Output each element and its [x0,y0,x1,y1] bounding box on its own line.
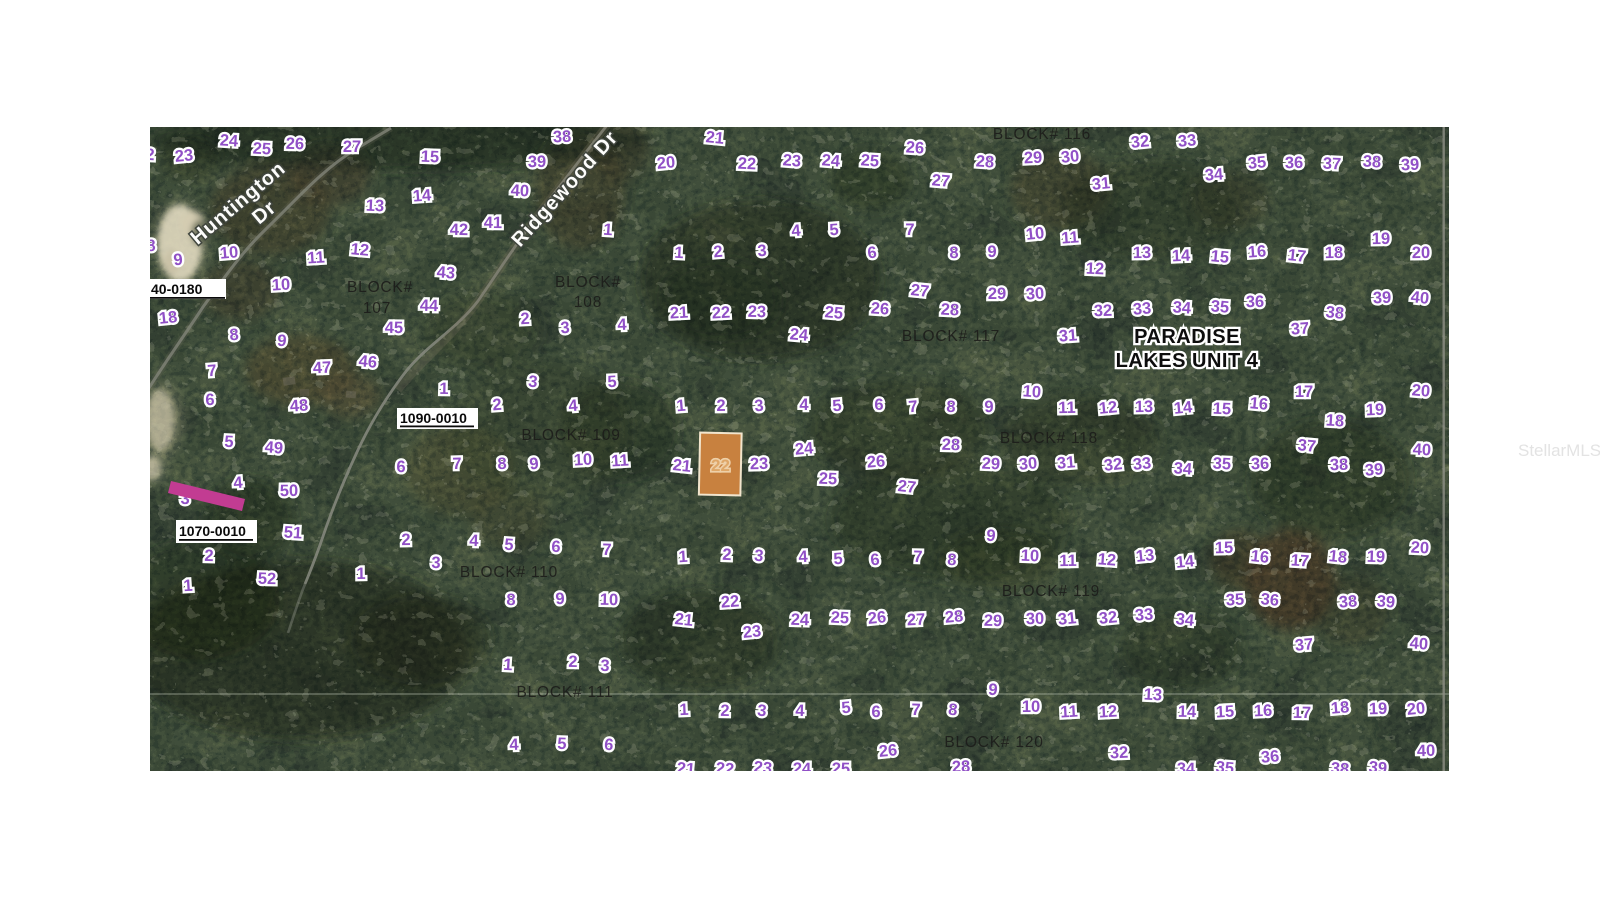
svg-text:23: 23 [174,146,194,166]
svg-text:13: 13 [1143,686,1162,705]
svg-text:7: 7 [905,221,914,239]
svg-text:15: 15 [1212,400,1231,419]
svg-text:13: 13 [1135,398,1154,416]
svg-text:37: 37 [1290,319,1310,338]
svg-text:31: 31 [1058,326,1078,345]
svg-text:BLOCK# 119: BLOCK# 119 [1002,583,1100,600]
svg-text:11: 11 [1059,552,1077,570]
svg-text:BLOCK#: BLOCK# [555,274,621,291]
svg-text:2: 2 [492,396,502,415]
svg-text:26: 26 [878,741,898,761]
svg-text:14: 14 [1171,247,1191,266]
svg-text:23: 23 [750,455,769,473]
svg-text:11: 11 [307,248,326,267]
svg-text:15: 15 [1215,539,1234,557]
svg-text:38: 38 [552,128,571,147]
svg-text:4: 4 [509,736,520,754]
svg-text:15: 15 [1210,247,1230,267]
svg-text:20: 20 [1411,381,1431,400]
svg-text:19: 19 [1365,401,1384,420]
svg-text:5: 5 [832,397,843,416]
svg-text:4: 4 [799,396,809,414]
svg-text:7: 7 [452,455,462,473]
svg-text:6: 6 [205,391,215,409]
svg-text:30: 30 [1060,147,1080,167]
svg-text:10: 10 [1022,382,1042,401]
svg-text:30: 30 [1018,454,1038,474]
svg-text:21: 21 [674,610,694,630]
svg-text:35: 35 [1247,153,1267,173]
svg-text:34: 34 [1172,298,1192,317]
svg-text:26: 26 [867,608,887,628]
svg-text:12: 12 [1098,398,1118,418]
svg-text:11: 11 [1061,228,1080,247]
svg-text:17: 17 [1290,551,1309,570]
svg-text:24: 24 [791,611,811,630]
svg-text:1: 1 [679,701,689,719]
svg-text:35: 35 [1212,455,1231,474]
svg-text:8: 8 [947,551,957,570]
svg-text:29: 29 [984,612,1003,630]
svg-text:31: 31 [1056,453,1076,472]
svg-text:1: 1 [503,656,513,675]
svg-text:5: 5 [224,433,234,451]
svg-text:8: 8 [506,591,515,609]
svg-text:52: 52 [258,570,277,588]
svg-text:40: 40 [510,182,529,201]
svg-text:11: 11 [611,451,630,470]
svg-text:21: 21 [705,128,725,148]
svg-text:10: 10 [1022,698,1040,716]
svg-text:BLOCK# 111: BLOCK# 111 [516,684,613,701]
svg-text:4: 4 [795,702,805,720]
svg-text:25: 25 [860,151,880,170]
svg-text:3: 3 [600,657,610,675]
svg-text:10: 10 [1025,224,1045,244]
svg-text:25: 25 [818,470,837,489]
svg-text:2: 2 [720,702,730,720]
svg-text:32: 32 [1109,744,1128,763]
svg-text:22: 22 [737,155,756,174]
svg-text:3: 3 [753,547,764,566]
svg-text:3: 3 [560,319,570,338]
svg-text:9: 9 [985,527,996,546]
svg-text:6: 6 [871,703,880,721]
svg-text:5: 5 [607,373,617,391]
svg-text:107: 107 [363,300,391,317]
svg-text:37: 37 [1297,436,1317,456]
svg-text:3: 3 [754,397,765,416]
svg-text:34: 34 [1175,610,1196,630]
svg-text:33: 33 [1177,131,1197,150]
svg-text:20: 20 [656,153,676,173]
svg-text:32: 32 [1130,132,1150,152]
svg-text:39: 39 [1364,460,1384,479]
svg-text:20: 20 [1410,539,1429,558]
svg-text:36: 36 [1246,293,1265,311]
svg-text:49: 49 [264,438,284,457]
svg-text:23: 23 [742,622,762,642]
svg-text:2: 2 [713,243,724,262]
svg-text:20: 20 [1406,699,1426,719]
svg-text:6: 6 [870,551,881,570]
svg-text:50: 50 [280,482,299,500]
svg-text:28: 28 [975,152,994,171]
svg-text:7: 7 [602,541,612,559]
svg-text:4: 4 [469,532,480,550]
svg-text:10: 10 [600,591,619,609]
svg-text:41: 41 [484,214,503,232]
svg-text:23: 23 [782,151,802,170]
svg-text:6: 6 [867,244,878,263]
svg-text:20: 20 [1412,244,1431,262]
svg-text:15: 15 [420,148,439,167]
svg-text:4: 4 [798,548,809,566]
svg-text:19: 19 [1372,230,1391,248]
svg-text:2: 2 [568,653,578,671]
svg-text:9: 9 [987,681,998,700]
svg-text:5: 5 [829,221,839,240]
svg-text:45: 45 [385,319,404,337]
svg-text:17: 17 [1293,704,1312,722]
svg-text:24: 24 [794,439,815,459]
svg-text:36: 36 [1260,590,1280,610]
svg-text:13: 13 [365,197,384,216]
svg-text:9: 9 [277,332,288,351]
svg-text:35: 35 [1210,297,1230,316]
svg-text:2: 2 [401,531,411,549]
svg-text:PARADISE: PARADISE [1134,326,1240,348]
svg-text:13: 13 [1133,244,1152,262]
svg-text:1: 1 [183,577,193,596]
svg-text:32: 32 [1098,608,1118,628]
svg-text:5: 5 [841,699,852,718]
svg-text:6: 6 [551,538,561,556]
svg-text:27: 27 [343,138,361,156]
svg-text:24: 24 [219,131,239,150]
svg-text:7: 7 [207,362,218,381]
svg-text:27: 27 [906,611,925,630]
svg-text:9: 9 [984,398,994,416]
svg-text:9: 9 [173,251,184,270]
svg-text:40-0180: 40-0180 [151,281,203,297]
svg-text:22: 22 [711,304,730,323]
svg-text:26: 26 [870,299,889,318]
svg-text:12: 12 [1098,703,1117,722]
svg-text:26: 26 [866,452,886,471]
svg-text:21: 21 [669,304,688,323]
svg-text:36: 36 [1285,154,1304,172]
svg-text:3: 3 [757,242,767,261]
svg-text:8: 8 [949,244,959,262]
svg-text:38: 38 [1338,592,1358,611]
svg-text:34: 34 [1204,165,1224,184]
svg-text:14: 14 [412,186,432,205]
svg-text:42: 42 [450,221,469,239]
svg-text:BLOCK# 116: BLOCK# 116 [993,126,1091,143]
svg-text:14: 14 [1178,703,1198,721]
svg-text:7: 7 [908,398,919,417]
svg-text:33: 33 [1132,454,1152,474]
svg-text:11: 11 [1058,399,1076,417]
svg-text:5: 5 [504,536,514,555]
svg-text:2: 2 [520,310,530,328]
svg-text:51: 51 [283,523,302,542]
svg-text:3: 3 [431,554,441,572]
svg-text:7: 7 [911,701,921,719]
svg-text:8: 8 [229,326,239,345]
svg-text:27: 27 [897,477,917,497]
svg-text:LAKES UNIT 4: LAKES UNIT 4 [1116,350,1259,372]
svg-text:47: 47 [312,359,331,378]
svg-text:14: 14 [1173,398,1194,418]
svg-text:39: 39 [1376,592,1396,611]
svg-text:27: 27 [931,171,951,190]
svg-text:1: 1 [676,397,687,416]
svg-text:8: 8 [947,701,958,720]
svg-text:8: 8 [497,455,507,473]
svg-text:7: 7 [913,548,923,566]
svg-text:27: 27 [910,281,930,301]
svg-text:39: 39 [528,153,547,171]
svg-text:26: 26 [286,135,305,154]
svg-text:33: 33 [1134,605,1153,624]
svg-text:16: 16 [1250,547,1270,567]
svg-text:38: 38 [1325,303,1345,323]
svg-text:40: 40 [1410,288,1430,308]
svg-text:25: 25 [824,303,844,323]
svg-text:9: 9 [555,590,565,608]
svg-text:44: 44 [420,297,440,315]
svg-text:24: 24 [789,325,810,345]
svg-text:28: 28 [942,436,961,455]
svg-text:31: 31 [1057,609,1077,629]
svg-text:37: 37 [1322,155,1341,174]
svg-text:40: 40 [1409,634,1429,653]
svg-text:12: 12 [1085,260,1104,279]
svg-text:BLOCK# 109: BLOCK# 109 [521,427,620,444]
svg-text:26: 26 [905,138,924,157]
svg-text:19: 19 [1367,548,1386,567]
svg-text:18: 18 [1330,698,1350,717]
svg-text:BLOCK#: BLOCK# [347,279,413,296]
svg-text:40: 40 [1412,441,1431,460]
svg-text:29: 29 [981,455,1000,474]
svg-text:40: 40 [1417,742,1436,760]
svg-text:1090-0010: 1090-0010 [400,410,467,426]
svg-text:4: 4 [617,316,628,334]
svg-text:33: 33 [1132,299,1152,318]
svg-text:32: 32 [1103,455,1123,475]
svg-text:46: 46 [358,352,378,372]
svg-text:16: 16 [1253,702,1272,721]
svg-text:1: 1 [439,380,449,398]
svg-text:28: 28 [944,607,964,626]
svg-text:21: 21 [672,456,692,476]
svg-text:10: 10 [1020,547,1039,566]
svg-text:39: 39 [1400,156,1419,175]
svg-text:30: 30 [1026,610,1045,629]
svg-text:10: 10 [573,451,592,470]
svg-text:5: 5 [557,735,567,753]
svg-text:3: 3 [527,373,538,392]
svg-text:6: 6 [874,396,883,414]
svg-text:8: 8 [946,398,956,416]
svg-text:48: 48 [289,396,309,415]
svg-text:11: 11 [1060,703,1078,722]
svg-text:BLOCK# 120: BLOCK# 120 [944,734,1043,751]
svg-text:15: 15 [1215,703,1234,722]
svg-text:38: 38 [1362,152,1381,171]
svg-text:36: 36 [1251,455,1270,473]
svg-text:1: 1 [603,221,613,240]
svg-text:1: 1 [678,548,688,566]
svg-text:9: 9 [987,243,996,261]
svg-text:18: 18 [1325,244,1344,262]
svg-text:19: 19 [1369,700,1388,718]
svg-text:23: 23 [748,303,767,322]
svg-text:36: 36 [1260,747,1280,766]
svg-text:38: 38 [1330,456,1349,475]
svg-text:24: 24 [821,151,841,170]
svg-text:22: 22 [720,592,740,611]
svg-text:29: 29 [988,285,1006,303]
svg-text:1: 1 [356,565,365,583]
svg-text:12: 12 [350,240,370,260]
svg-text:25: 25 [830,609,849,628]
svg-text:1: 1 [674,244,684,262]
svg-text:StellarMLS: StellarMLS [1518,441,1600,460]
svg-text:2: 2 [204,547,214,565]
svg-text:18: 18 [1328,547,1348,567]
svg-text:22: 22 [711,456,730,475]
svg-text:25: 25 [252,140,271,159]
svg-text:39: 39 [1372,289,1391,308]
svg-text:10: 10 [219,243,239,262]
svg-text:BLOCK# 118: BLOCK# 118 [1000,430,1098,447]
svg-text:10: 10 [271,276,290,295]
svg-text:14: 14 [1175,552,1196,572]
svg-text:108: 108 [574,294,602,311]
svg-text:43: 43 [436,263,456,282]
svg-text:BLOCK# 110: BLOCK# 110 [460,564,558,581]
svg-text:5: 5 [833,550,843,569]
svg-text:35: 35 [1225,591,1244,610]
svg-text:BLOCK# 117: BLOCK# 117 [902,328,1000,345]
svg-text:18: 18 [1325,411,1344,430]
svg-text:37: 37 [1294,635,1314,654]
svg-text:13: 13 [1135,546,1155,566]
svg-text:30: 30 [1025,284,1045,303]
svg-text:1070-0010: 1070-0010 [179,523,246,539]
svg-text:16: 16 [1249,394,1269,414]
svg-text:17: 17 [1287,246,1307,266]
svg-text:34: 34 [1173,459,1193,478]
svg-text:9: 9 [529,455,540,474]
svg-text:17: 17 [1295,383,1313,401]
svg-text:29: 29 [1023,149,1042,168]
svg-text:28: 28 [940,301,959,320]
svg-text:32: 32 [1094,302,1113,321]
svg-text:6: 6 [396,458,405,476]
svg-text:3: 3 [756,702,767,721]
svg-text:2: 2 [716,397,725,415]
svg-text:18: 18 [158,308,178,328]
svg-text:16: 16 [1247,242,1267,261]
svg-text:31: 31 [1091,174,1111,194]
svg-text:2: 2 [722,546,732,564]
svg-text:12: 12 [1097,550,1117,569]
svg-text:6: 6 [603,736,614,755]
